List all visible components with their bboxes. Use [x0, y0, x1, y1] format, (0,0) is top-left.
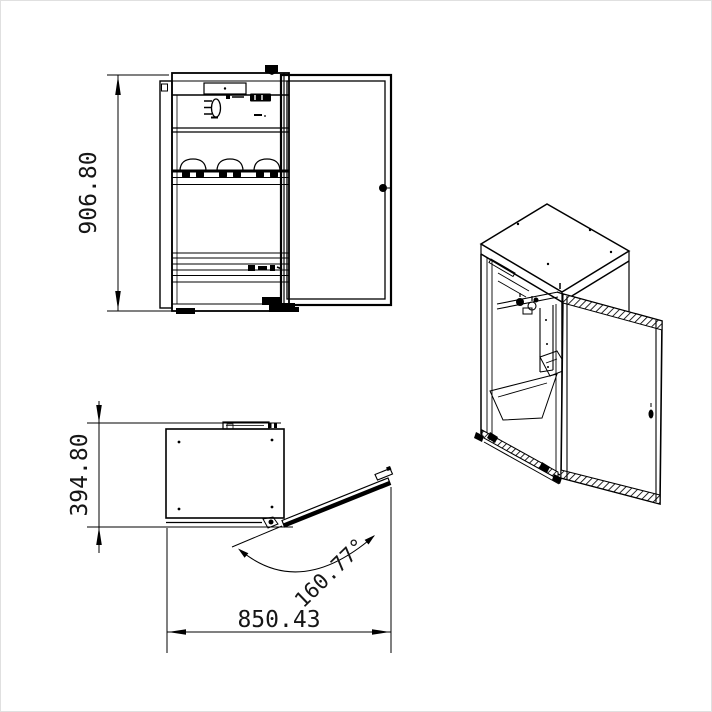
door-angle-label: 160.77° — [290, 534, 370, 613]
depth-dimension-label: 394.80 — [67, 433, 93, 516]
drawing-sheet: 906.80 — [0, 0, 712, 712]
door-knob — [379, 184, 387, 192]
plan-cabinet-body — [166, 422, 284, 528]
lower-shelf — [172, 253, 289, 304]
arrow-right-icon — [372, 629, 390, 635]
nozzle-clamp — [516, 298, 524, 306]
iso-interior — [474, 273, 568, 484]
door-handle-cap — [375, 469, 393, 481]
clamp-dome — [217, 159, 243, 171]
isometric-view — [474, 204, 662, 504]
hinge-notch — [162, 84, 168, 91]
foot-left — [176, 308, 195, 314]
nozzle-shelf — [172, 159, 289, 185]
width-dimension-label: 850.43 — [237, 607, 320, 633]
iso-door-open — [557, 292, 662, 504]
clamp-dome — [254, 159, 280, 171]
bottom-hinge — [262, 297, 282, 305]
technical-drawing: 906.80 — [1, 1, 712, 712]
ramp-shelf — [490, 374, 557, 420]
plan-door-open — [282, 466, 393, 527]
logo-badge-icon — [250, 94, 271, 102]
arrow-left-icon — [168, 629, 186, 635]
control-panel — [204, 94, 271, 118]
height-dimension-label: 906.80 — [76, 151, 102, 234]
plan-angle-dimension: 160.77° — [232, 526, 375, 612]
plan-depth-dimension: 394.80 — [67, 401, 293, 553]
front-door-open — [281, 75, 391, 305]
front-view: 906.80 — [76, 65, 391, 314]
door-knob — [649, 410, 654, 419]
arrow-down-icon — [115, 291, 121, 310]
arrow-up-icon — [115, 76, 121, 95]
front-cabinet-body — [160, 65, 299, 314]
arc-arrow-icon — [238, 549, 248, 558]
connector-icon — [212, 99, 221, 117]
arrow-up-icon — [96, 527, 102, 545]
plan-view: 394.80 — [67, 401, 393, 653]
clamp-dome — [180, 159, 206, 171]
arrow-down-icon — [96, 405, 102, 423]
switch-icon — [226, 95, 230, 99]
